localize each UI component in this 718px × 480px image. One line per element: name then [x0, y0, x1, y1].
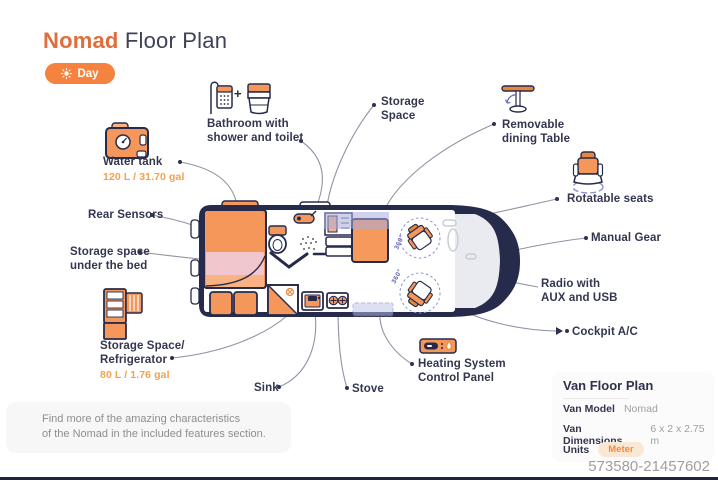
shower-icon	[203, 78, 237, 116]
callout-cockpit-ac: Cockpit A/C	[572, 325, 638, 339]
callout-heating: Heating System Control Panel	[418, 357, 506, 385]
callout-radio: Radio with AUX and USB	[541, 277, 618, 305]
footnote-line-2: of the Nomad in the included features se…	[42, 427, 291, 442]
info-row-units: Units Meter	[563, 442, 644, 457]
info-panel-divider	[563, 398, 629, 399]
info-panel-title: Van Floor Plan	[563, 378, 653, 393]
van-floor-plan-illustration: 360° 360°	[183, 196, 528, 328]
bed	[204, 210, 266, 288]
callout-manual-gear: Manual Gear	[591, 231, 661, 245]
kitchen-corner-unit	[268, 285, 298, 315]
callout-rotatable-seats: Rotatable seats	[567, 192, 654, 206]
refrigerator-icon	[96, 285, 144, 341]
callout-sink: Sink	[254, 381, 279, 395]
units-badge[interactable]: Meter	[598, 442, 643, 457]
callout-water-tank: Water tank 120 L / 31.70 gal	[103, 155, 184, 184]
info-row-model: Van Model Nomad	[563, 403, 658, 415]
dinette-bench	[326, 237, 352, 256]
callout-under-bed-storage: Storage space under the bed	[70, 245, 150, 273]
toilet-icon	[245, 82, 273, 116]
callout-stove: Stove	[352, 382, 384, 396]
callout-rear-sensors: Rear Sensors	[88, 208, 163, 222]
footnote-line-1: Find more of the amazing characteristics	[42, 412, 291, 427]
fan-icon	[287, 289, 294, 296]
watermark-id: 573580-21457602	[588, 458, 710, 475]
refrigerator-capacity: 80 L / 1.76 gal	[100, 368, 185, 382]
callout-bathroom: Bathroom with shower and toilet	[207, 117, 303, 145]
bed-cushions	[210, 292, 257, 315]
rear-sensor-nubs	[191, 220, 199, 304]
plus-sign: +	[234, 86, 242, 101]
floor-plan-page: Nomad Floor Plan Day	[0, 0, 718, 480]
footnote-box: Find more of the amazing characteristics…	[6, 402, 291, 453]
rotatable-seat-icon	[568, 150, 608, 196]
toilet	[269, 226, 286, 253]
heating-panel-icon	[418, 337, 458, 355]
callout-storage-space: Storage Space	[381, 95, 425, 123]
van-info-panel: Van Floor Plan Van Model Nomad Van Dimen…	[552, 372, 714, 462]
callout-dining-table: Removable dining Table	[502, 118, 570, 146]
kitchen-sink	[302, 292, 323, 310]
kitchen-stove	[327, 293, 348, 308]
callout-refrigerator: Storage Space/ Refrigerator 80 L / 1.76 …	[100, 339, 185, 382]
overhead-storage-zone	[324, 212, 389, 229]
dining-table-icon	[498, 82, 538, 114]
heating-system-zone	[353, 303, 393, 316]
water-tank-capacity: 120 L / 31.70 gal	[103, 170, 184, 184]
